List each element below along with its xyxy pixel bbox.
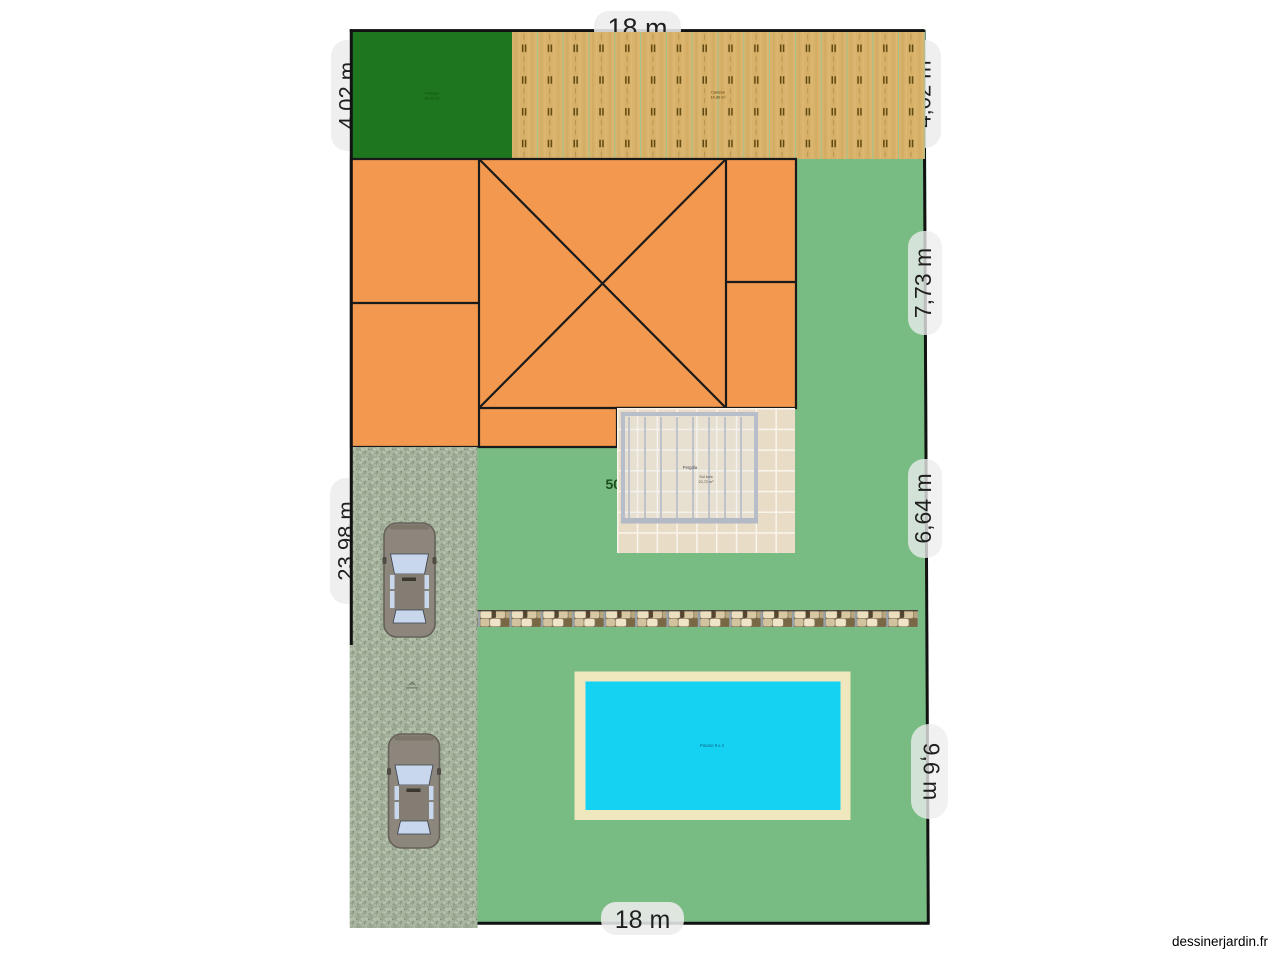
svg-text:7,73 m: 7,73 m	[910, 248, 936, 318]
svg-text:dessinerjardin.fr: dessinerjardin.fr	[1172, 934, 1269, 949]
svg-text:16,50 m²: 16,50 m²	[424, 96, 440, 101]
svg-text:Sol bois: Sol bois	[699, 475, 713, 479]
svg-text:14,36 m²: 14,36 m²	[710, 95, 726, 100]
svg-text:20,72 m²: 20,72 m²	[699, 480, 715, 484]
svg-text:6,64 m: 6,64 m	[910, 473, 936, 543]
svg-text:Pergola: Pergola	[683, 465, 698, 470]
svg-text:9,6 m: 9,6 m	[918, 743, 944, 801]
svg-text:18 m: 18 m	[615, 906, 671, 934]
svg-text:Piscine 9 x 4: Piscine 9 x 4	[700, 743, 724, 748]
